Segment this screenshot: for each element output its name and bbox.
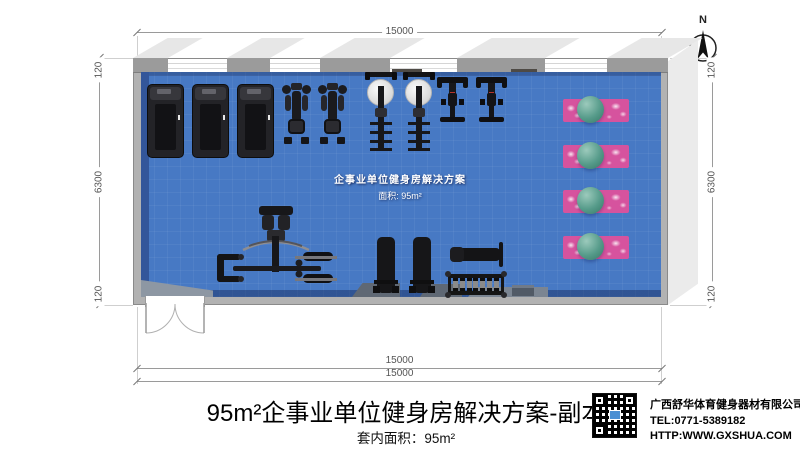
extension-line	[137, 307, 138, 384]
qr-logo	[609, 410, 621, 420]
extension-line	[661, 307, 662, 384]
dimension-bottom-inner: 15000	[137, 381, 662, 382]
wall-pier	[227, 58, 270, 73]
window-strip	[168, 59, 227, 72]
yoga-mat-with-exercise-ball-icon	[563, 99, 629, 122]
spin-bike-top-view-icon	[437, 77, 468, 123]
watermark-area: 面积: 95m²	[334, 189, 466, 202]
area-label: 套内面积：95m²	[357, 427, 455, 447]
dumbbell-rack-top-view-icon	[448, 274, 504, 295]
dimension-label: 120	[94, 282, 105, 307]
dimension-tick	[658, 29, 666, 37]
dimension-label: 6300	[707, 167, 718, 197]
dimension-label: 15000	[382, 368, 418, 379]
exercise-bike-top-view-icon	[281, 83, 312, 144]
yoga-mat-with-exercise-ball-icon	[563, 190, 629, 213]
flat-bench-top-view-icon	[413, 237, 431, 293]
spin-bike-top-view-icon	[476, 77, 507, 123]
dimension-label: 120	[707, 58, 718, 83]
dimension-label: 6300	[94, 167, 105, 197]
plan-watermark: 企事业单位健身房解决方案 面积: 95m²	[334, 171, 466, 202]
treadmill-top-view-icon	[237, 84, 274, 158]
wall-extrusion-right	[668, 40, 698, 305]
exercise-ball-icon	[577, 96, 604, 123]
company-tel: TEL:0771-5389182	[650, 415, 800, 427]
north-label: N	[683, 14, 723, 26]
treadmill-top-view-icon	[147, 84, 184, 158]
rowing-machine-top-view-icon	[364, 72, 398, 152]
exercise-bike-top-view-icon	[317, 83, 348, 144]
extension-line	[103, 305, 133, 306]
extension-line	[670, 305, 708, 306]
company-url: HTTP:WWW.GXSHUA.COM	[650, 430, 800, 442]
company-info: 广西舒华体育健身器材有限公司 TEL:0771-5389182 HTTP:WWW…	[650, 396, 800, 442]
dimension-label: 120	[94, 58, 105, 83]
extension-line	[103, 58, 133, 59]
yoga-mat-with-exercise-ball-icon	[563, 145, 629, 168]
awning-extrusion	[457, 38, 580, 58]
company-name: 广西舒华体育健身器材有限公司	[650, 396, 800, 412]
double-swing-door-icon	[145, 303, 205, 337]
qr-code-icon	[592, 393, 637, 438]
step-platform-icon	[512, 285, 534, 296]
rowing-machine-top-view-icon	[402, 72, 436, 152]
exercise-ball-icon	[577, 233, 604, 260]
extension-line	[137, 36, 138, 56]
wall-pier	[320, 58, 390, 73]
awning-extrusion	[320, 38, 425, 58]
awning-extrusion	[227, 38, 305, 58]
wall-pier	[133, 58, 168, 73]
window-strip	[545, 59, 607, 72]
flat-bench-top-view-icon	[377, 237, 395, 293]
dimension-label: 120	[707, 282, 718, 307]
floorplan-canvas: 15000 N 120 6300 120 120 6300 120 15000	[0, 0, 800, 450]
adjustable-bench-top-view-icon	[452, 248, 500, 261]
exercise-ball-icon	[577, 142, 604, 169]
exercise-ball-icon	[577, 187, 604, 214]
dimension-top: 15000	[137, 32, 662, 33]
treadmill-top-view-icon	[192, 84, 229, 158]
wall-pier	[607, 58, 668, 73]
yoga-mat-with-exercise-ball-icon	[563, 236, 629, 259]
dimension-label: 15000	[382, 355, 418, 366]
awning-extrusion	[133, 38, 203, 58]
page-title: 95m²企事业单位健身房解决方案-副本	[207, 393, 606, 428]
dimension-label: 15000	[382, 26, 418, 37]
multi-station-trainer-top-view-icon	[215, 206, 340, 294]
window-strip	[270, 59, 320, 72]
watermark-title: 企事业单位健身房解决方案	[334, 171, 466, 186]
